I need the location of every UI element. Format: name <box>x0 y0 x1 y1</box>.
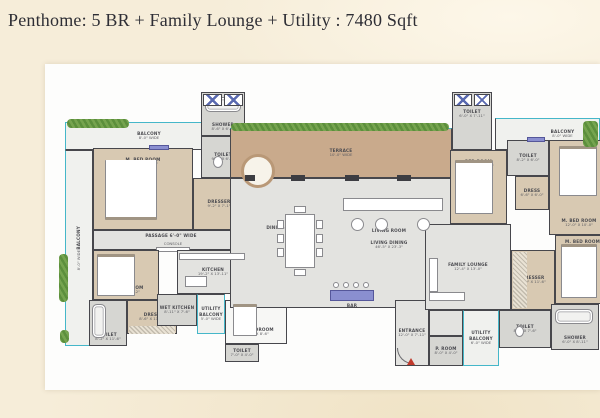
room-label: PASSAGE 6'-0" WIDE <box>145 233 196 238</box>
room-dims: 9'-2" X 7'-1" <box>208 204 231 209</box>
room-label: BALCONY <box>76 226 81 250</box>
brochure-page: Penthome: 5 BR + Family Lounge + Utility… <box>0 0 600 418</box>
column <box>291 175 305 181</box>
room-dims: 6'-0" X 7'-11" <box>459 114 484 119</box>
column <box>397 175 411 181</box>
room-foyer <box>429 310 463 336</box>
room-dims: 8'-0" WIDE <box>77 250 82 270</box>
bed-icon <box>455 160 493 214</box>
room-dress-3: DRESS 6'-6" X 6'-0" <box>515 176 549 210</box>
plant-strip-icon <box>67 119 129 128</box>
armchair-icon <box>417 218 430 231</box>
bar-stool-icon <box>343 282 349 288</box>
bar-stool-icon <box>353 282 359 288</box>
window-band <box>149 145 169 150</box>
room-toilet-6: TOILET 8'-6" X 7'-6" <box>499 310 551 348</box>
toilet-wc-icon <box>213 156 223 168</box>
plant-strip-icon <box>59 254 68 302</box>
room-dims: 8'-0" WIDE <box>552 134 572 139</box>
bathtub-icon <box>555 309 593 324</box>
bar-stool-icon <box>333 282 339 288</box>
bar-stool-icon <box>363 282 369 288</box>
room-dims: 6'-0" X 8'-11" <box>562 340 587 345</box>
plant-strip-icon <box>231 123 449 131</box>
spa-tub-icon <box>241 154 275 188</box>
room-wet-kitchen: WET KITCHEN 8'-11" X 7'-6" <box>157 294 197 326</box>
room-dims: 8'-11" X 7'-6" <box>164 310 189 315</box>
sofa-icon <box>429 292 465 301</box>
armchair-icon <box>351 218 364 231</box>
bed-icon <box>233 304 257 336</box>
room-dims: 8'-0" X 4'-0" <box>435 351 458 356</box>
closet-hatch <box>129 326 175 334</box>
room-utility-balcony-left: UTILITY BALCONY 5'-0" WIDE <box>197 294 225 334</box>
room-dims: 5'-0" WIDE <box>201 317 221 322</box>
room-dims: 7'-0" X 4'-0" <box>231 353 254 358</box>
room-passage: PASSAGE 6'-0" WIDE <box>93 230 249 250</box>
bar-counter <box>330 290 374 301</box>
chair-icon <box>294 206 306 213</box>
closet-hatch <box>513 252 527 308</box>
chair-icon <box>294 269 306 276</box>
sofa-icon <box>429 258 438 292</box>
room-dims: 8'-2" X 6'-0" <box>517 158 540 163</box>
armchair-icon <box>375 218 388 231</box>
room-dims: 12'-4" X 13'-0" <box>454 267 482 272</box>
toilet-wc-icon <box>515 326 524 337</box>
window-band <box>527 137 545 142</box>
bed-icon <box>97 254 135 296</box>
kitchen-island <box>185 276 207 287</box>
window-icon <box>203 94 222 106</box>
room-toilet-5: TOILET 8'-2" X 6'-0" <box>507 140 549 176</box>
dining-table-icon <box>285 214 315 268</box>
chair-icon <box>277 234 284 243</box>
bed-icon <box>105 160 157 220</box>
room-toilet-3: TOILET 7'-0" X 4'-0" <box>225 344 259 362</box>
room-dims: 6'-6" X 6'-0" <box>521 193 544 198</box>
plant-strip-icon <box>60 330 69 343</box>
room-dims: 12'-0" X 7'-11" <box>398 333 426 338</box>
entrance-arrow-icon <box>407 358 415 365</box>
room-dims: 12'-0" X 10'-0" <box>565 223 593 228</box>
room-utility-balcony-right: UTILITY BALCONY 6'-0" WIDE <box>463 310 499 366</box>
bed-icon <box>559 146 597 196</box>
room-dims: 8'-0" WIDE <box>139 136 159 141</box>
chair-icon <box>316 248 323 257</box>
kitchen-counter <box>179 253 245 260</box>
plant-strip-icon <box>583 121 598 147</box>
floorplan-sheet: BALCONY 8'-0" WIDE BALCONY 8'-0" WIDE M.… <box>45 64 600 390</box>
bed-icon <box>561 244 597 298</box>
chair-icon <box>277 248 284 257</box>
page-title: Penthome: 5 BR + Family Lounge + Utility… <box>8 10 418 31</box>
window-icon <box>224 94 243 106</box>
chair-icon <box>316 220 323 229</box>
sofa-icon <box>343 198 443 211</box>
column <box>245 175 255 181</box>
window-icon <box>454 94 472 106</box>
chair-icon <box>316 234 323 243</box>
room-dims: 6'-0" WIDE <box>471 341 491 346</box>
column <box>345 175 359 181</box>
chair-icon <box>277 220 284 229</box>
room-powder-room: P. ROOM 8'-0" X 4'-0" <box>429 336 463 366</box>
window-icon <box>474 94 490 106</box>
bathtub-icon <box>92 304 106 338</box>
room-dims: 10'-0" WIDE <box>330 153 353 158</box>
